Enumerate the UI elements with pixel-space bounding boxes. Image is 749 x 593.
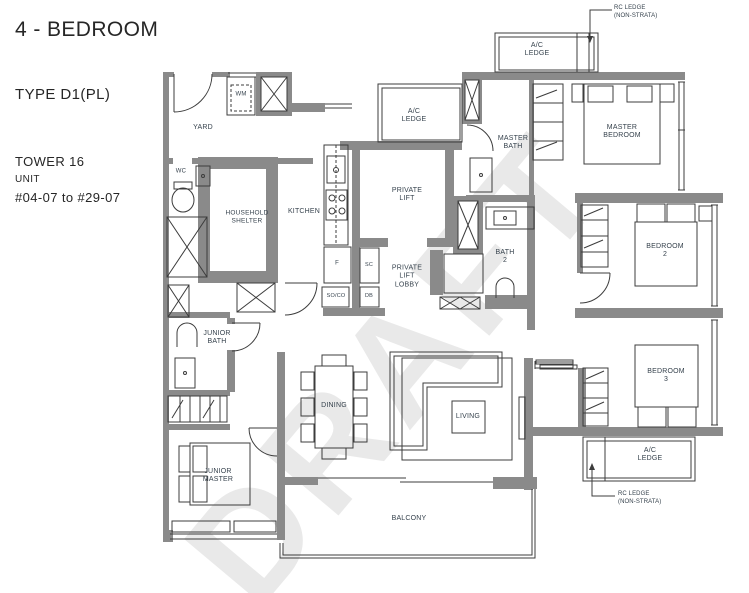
rc-ledge-leader-bottom bbox=[592, 470, 615, 496]
room-label-ac-ledge-bottom: A/C LEDGE bbox=[638, 447, 663, 464]
room-label-bath2: BATH 2 bbox=[496, 249, 515, 266]
unit-range: #04-07 to #29-07 bbox=[15, 190, 120, 205]
room-label-wc: WC bbox=[176, 168, 186, 175]
annotation-rc-ledge-bottom: RC LEDGE (NON-STRATA) bbox=[618, 491, 661, 506]
room-label-kitchen: KITCHEN bbox=[288, 208, 320, 216]
unit-type-label: TYPE D1(PL) bbox=[15, 86, 110, 103]
room-label-private-lift-lobby: PRIVATE LIFT LOBBY bbox=[392, 265, 422, 290]
room-label-db: DB bbox=[365, 293, 373, 299]
room-label-ac-ledge-top: A/C LEDGE bbox=[525, 42, 550, 59]
room-label-yard: YARD bbox=[193, 124, 213, 132]
room-label-bedroom2: BEDROOM 2 bbox=[646, 243, 684, 260]
room-label-household-shelter: HOUSEHOLD SHELTER bbox=[226, 209, 269, 224]
floor-plan-page: DRAFT bbox=[0, 0, 749, 593]
room-label-junior-bath: JUNIOR BATH bbox=[203, 330, 230, 347]
leader-lines bbox=[587, 10, 615, 496]
room-label-balcony: BALCONY bbox=[392, 515, 427, 523]
unit-caption: UNIT bbox=[15, 174, 40, 185]
room-label-soco: SO/CO bbox=[327, 293, 346, 299]
room-label-sc: SC bbox=[365, 262, 373, 268]
annotation-rc-ledge-top: RC LEDGE (NON-STRATA) bbox=[614, 5, 657, 20]
room-label-dining: DINING bbox=[321, 402, 347, 410]
room-label-ac-ledge-mid: A/C LEDGE bbox=[402, 108, 427, 125]
room-label-bedroom3: BEDROOM 3 bbox=[647, 368, 685, 385]
room-label-washing-machine: WM bbox=[235, 91, 246, 98]
room-label-master-bath: MASTER BATH bbox=[498, 135, 528, 152]
room-label-living: LIVING bbox=[456, 413, 480, 421]
tower-label: TOWER 16 bbox=[15, 154, 84, 169]
room-label-fridge: F bbox=[335, 260, 339, 267]
room-label-junior-master: JUNIOR MASTER bbox=[203, 468, 233, 485]
room-label-private-lift: PRIVATE LIFT bbox=[392, 187, 422, 204]
room-label-master-bedroom: MASTER BEDROOM bbox=[603, 124, 641, 141]
rc-ledge-leader-top bbox=[590, 10, 612, 36]
page-title: 4 - BEDROOM bbox=[15, 18, 158, 42]
